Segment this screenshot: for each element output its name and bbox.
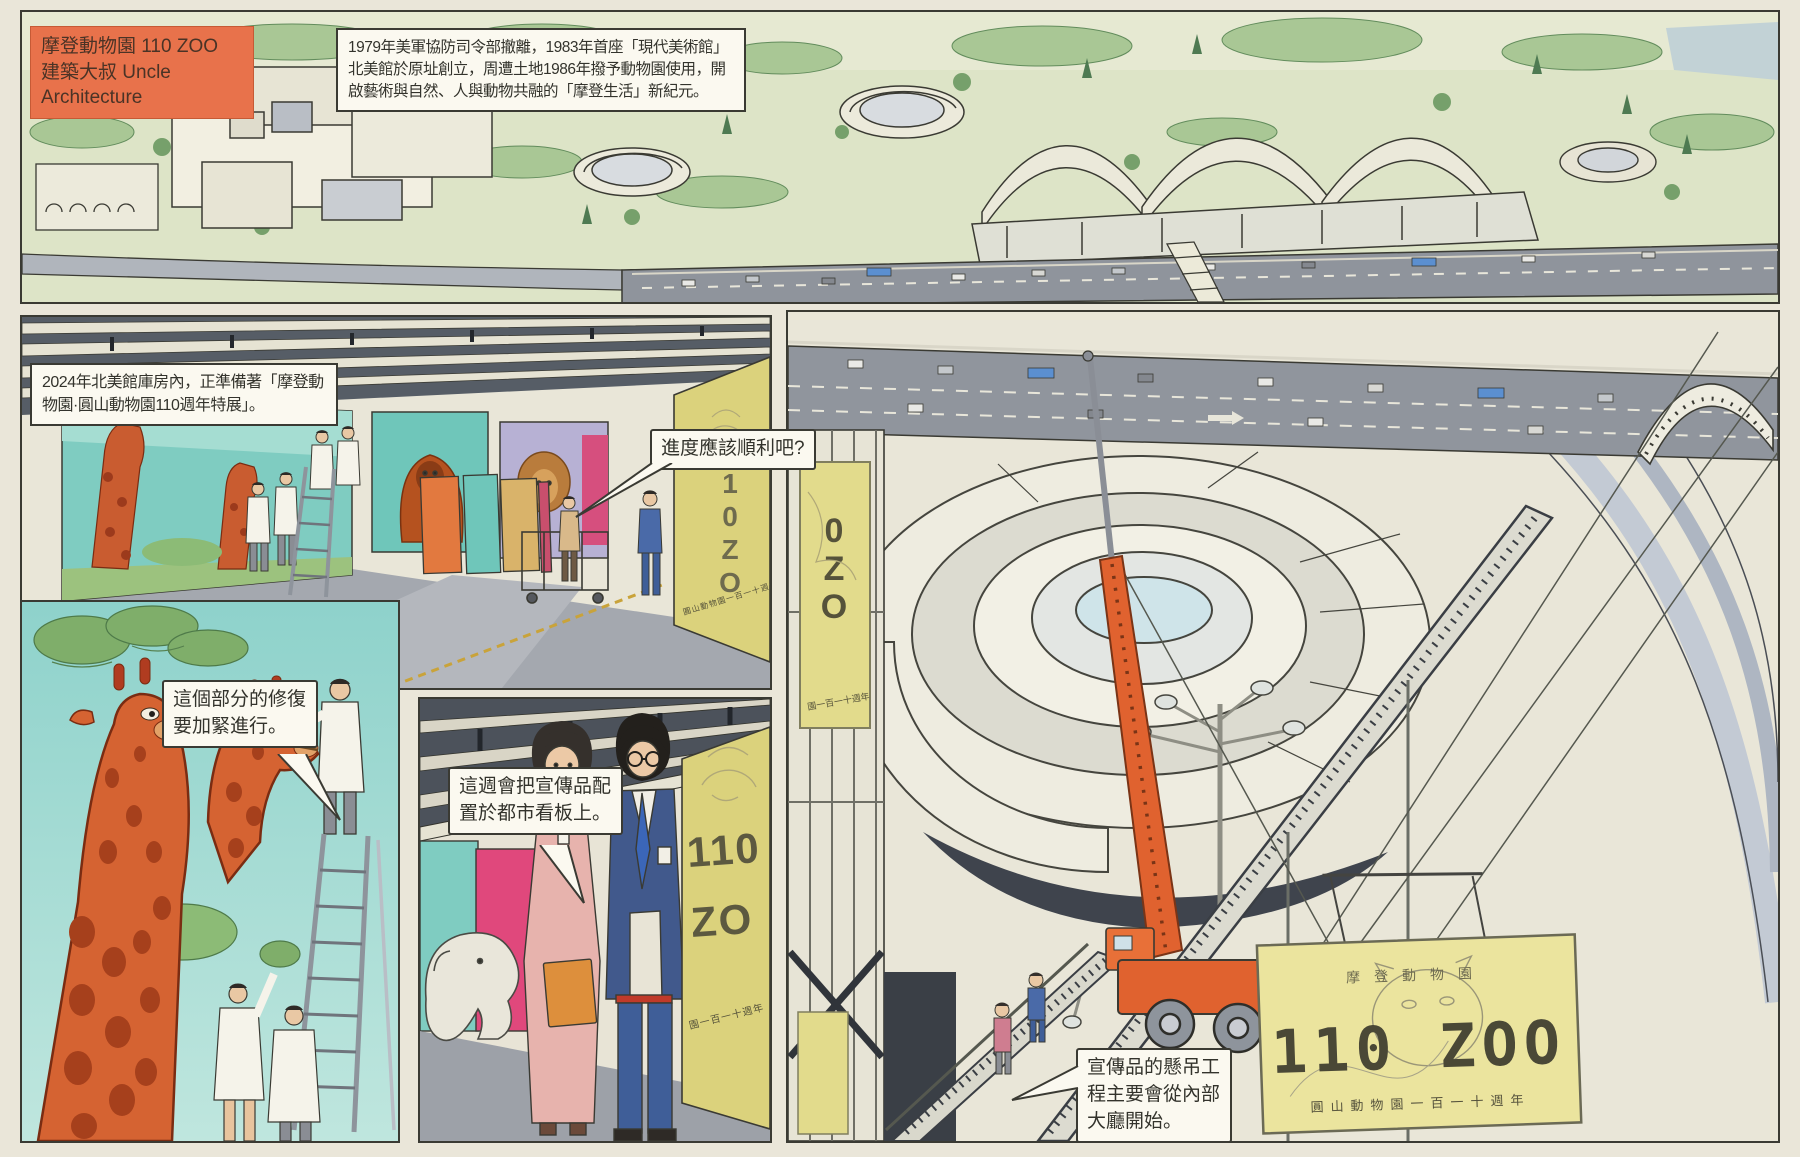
panel1-caption: 1979年美軍協防司令部撤離，1983年首座「現代美術館」北美館於原址創立，周遭… [336,28,746,112]
worker-pink [994,1003,1011,1074]
series-author: 建築大叔 Uncle Architecture [41,60,243,111]
panel-aerial-view [20,10,1780,304]
sunken-plaza-2 [840,86,964,138]
series-title-box: 摩登動物園 110 ZOO 建築大叔 Uncle Architecture [30,26,254,119]
worker-blue [1028,973,1045,1042]
jib-pulley [1083,351,1093,361]
round-pavilion [1560,142,1656,182]
mural-bush [142,538,222,566]
ossicone [114,664,124,690]
sunken-plaza-1 [574,148,690,196]
ossicone [140,658,150,684]
panel1-illustration [22,12,1778,302]
series-title: 摩登動物園 110 ZOO [41,34,243,60]
corridor-panels [420,474,551,573]
panel2-speech-tail [574,463,1322,834]
panel5-speech-tail [1010,1060,1800,1157]
comic-page: 摩登動物園 110 ZOO 建築大叔 Uncle Architecture 19… [0,0,1800,1157]
giraffe-mural [62,399,352,601]
panel-giraffe-restoration: 這個部分的修復要加緊進行。 [20,600,400,1143]
panel3-speech-bubble: 這個部分的修復要加緊進行。 [162,680,318,748]
left-arcade-building [36,164,158,230]
eye [149,711,155,717]
panel4-speech-tail [528,845,878,1157]
cab-window [1114,936,1132,950]
panel2-caption: 2024年北美館庫房內，正準備著「摩登動物園·圓山動物園110週年特展」。 [30,363,338,426]
